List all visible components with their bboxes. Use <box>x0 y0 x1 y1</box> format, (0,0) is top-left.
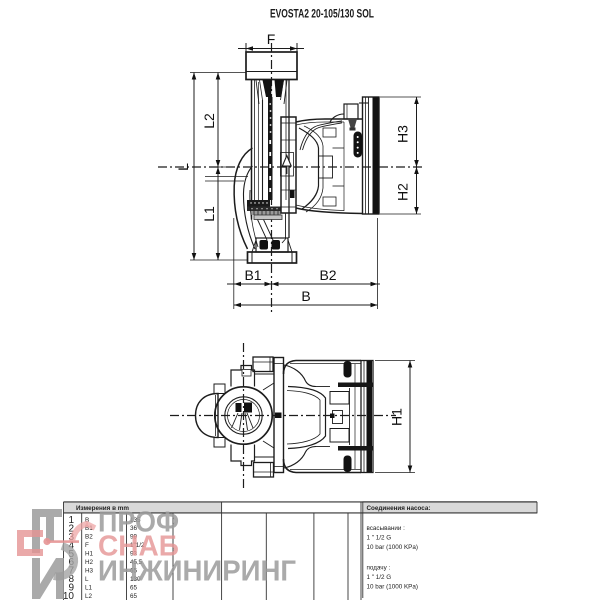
svg-text:H2: H2 <box>85 559 94 566</box>
svg-text:L: L <box>85 576 89 583</box>
svg-text:всасывании :: всасывании : <box>367 525 406 532</box>
svg-text:65: 65 <box>130 593 138 600</box>
svg-text:B2: B2 <box>85 534 93 541</box>
svg-text:подачу :: подачу : <box>367 565 391 572</box>
svg-text:1 " 1/2 G: 1 " 1/2 G <box>367 574 392 581</box>
svg-text:H2: H2 <box>395 183 411 201</box>
svg-text:Соединения насоса:: Соединения насоса: <box>367 505 431 512</box>
svg-text:ИНЖИНИРИНГ: ИНЖИНИРИНГ <box>98 556 296 588</box>
svg-text:H3: H3 <box>395 125 411 143</box>
svg-text:10 bar (1000 KPa): 10 bar (1000 KPa) <box>367 584 418 591</box>
svg-text:B2: B2 <box>319 267 336 283</box>
svg-text:B1: B1 <box>244 267 261 283</box>
svg-text:L1: L1 <box>85 584 93 591</box>
svg-text:EVOSTA2 20-105/130 SOL: EVOSTA2 20-105/130 SOL <box>270 9 374 21</box>
svg-text:L2: L2 <box>201 113 217 129</box>
svg-text:H1: H1 <box>389 408 405 426</box>
svg-text:H1: H1 <box>85 551 94 558</box>
svg-text:F: F <box>85 542 89 549</box>
svg-text:L1: L1 <box>201 206 217 222</box>
svg-text:F: F <box>267 31 276 47</box>
svg-text:L: L <box>175 163 191 171</box>
svg-text:10: 10 <box>63 591 75 600</box>
svg-text:H3: H3 <box>85 567 94 574</box>
svg-text:L2: L2 <box>85 593 93 600</box>
svg-text:10 bar (1000 KPa): 10 bar (1000 KPa) <box>367 544 418 551</box>
svg-text:1 " 1/2 G: 1 " 1/2 G <box>367 535 392 542</box>
svg-text:B: B <box>301 288 310 304</box>
